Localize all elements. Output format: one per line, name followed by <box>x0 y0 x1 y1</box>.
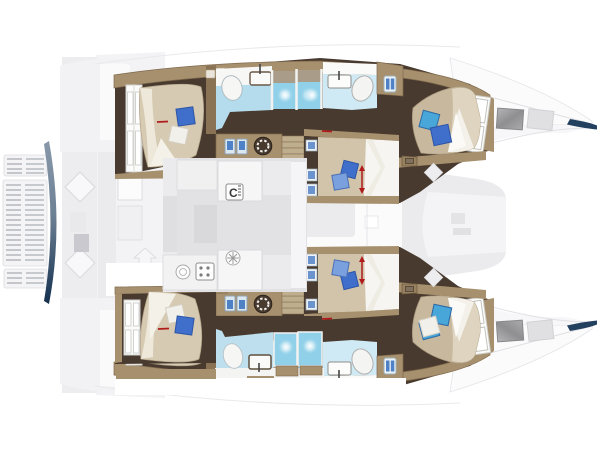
svg-text:C: C <box>229 186 238 200</box>
